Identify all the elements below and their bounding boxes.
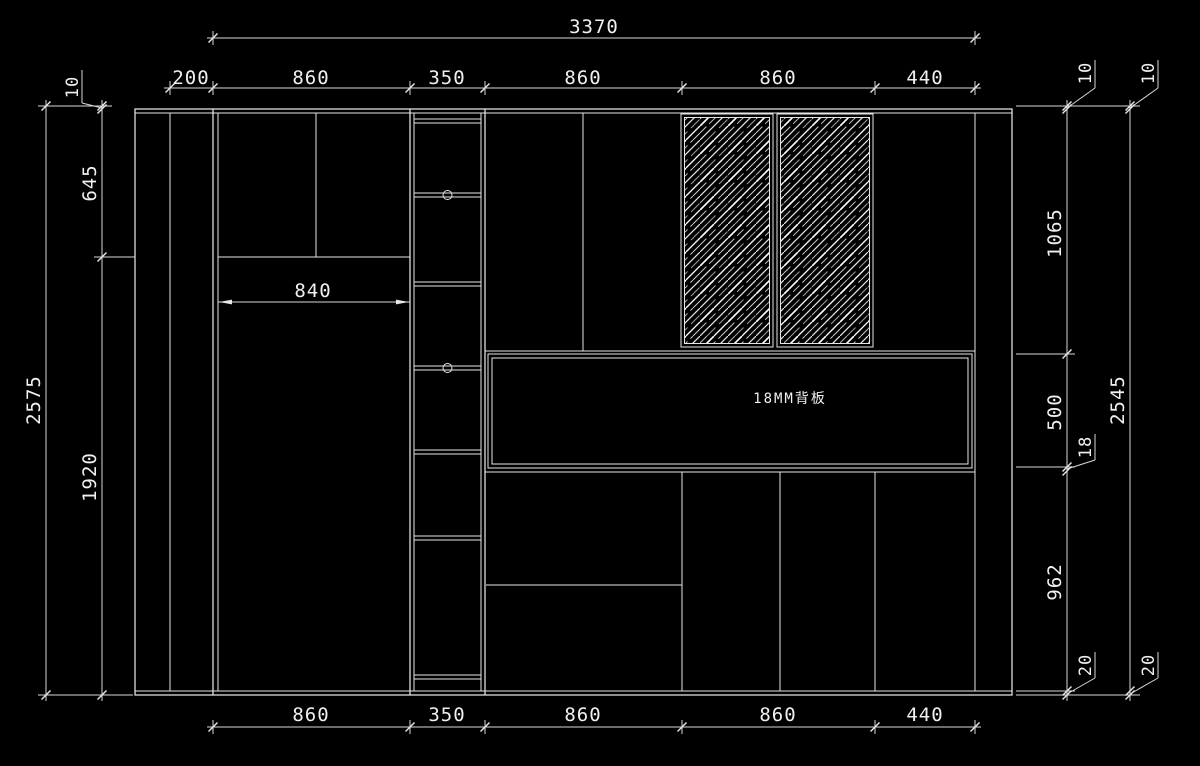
right-bay-lower xyxy=(486,472,875,691)
shelf-knob-circle-top xyxy=(443,191,452,200)
back-panel-outer-rect xyxy=(488,354,972,468)
cabinet-outline xyxy=(135,109,1012,695)
back-panel-band xyxy=(485,354,975,472)
dim-left-1920: 1920 xyxy=(79,452,101,502)
left-bay xyxy=(218,113,410,257)
dimension-lines xyxy=(38,31,1158,734)
dim-right-inner-20: 20 xyxy=(1076,654,1096,676)
dim-bottom-860c: 860 xyxy=(759,704,796,726)
dim-right-inner-1065: 1065 xyxy=(1044,208,1066,258)
dim-left-total: 2575 xyxy=(23,375,45,425)
middle-shelf-column xyxy=(414,119,481,679)
back-panel-label: 18MM背板 xyxy=(753,391,827,407)
dim-interior-840: 840 xyxy=(294,280,331,302)
dim-right-inner-500: 500 xyxy=(1044,393,1066,430)
cad-drawing-canvas: 3370 200 860 350 860 860 440 860 350 860… xyxy=(0,0,1200,766)
cabinet-structure xyxy=(135,109,1012,695)
dim-bottom-350: 350 xyxy=(428,704,465,726)
dim-right-outer-10: 10 xyxy=(1139,62,1159,84)
dim-top-860b: 860 xyxy=(564,67,601,89)
dim-bottom-440: 440 xyxy=(906,704,943,726)
dimension-labels: 3370 200 860 350 860 860 440 860 350 860… xyxy=(23,16,1159,726)
dim-top-860c: 860 xyxy=(759,67,796,89)
hatch-door-panel-right xyxy=(781,118,870,344)
wardrobe-elevation-drawing: 3370 200 860 350 860 860 440 860 350 860… xyxy=(0,0,1200,766)
dim-right-inner-962: 962 xyxy=(1044,563,1066,600)
dim-left-645: 645 xyxy=(79,164,101,201)
dim-left-10: 10 xyxy=(63,76,83,98)
dim-right-outer-20: 20 xyxy=(1139,654,1159,676)
dim-top-440: 440 xyxy=(906,67,943,89)
right-bay-upper xyxy=(485,113,975,351)
back-panel-inner-rect xyxy=(492,358,968,464)
dim-bottom-860b: 860 xyxy=(564,704,601,726)
dim-right-outer-2545: 2545 xyxy=(1107,375,1129,425)
dim-top-200: 200 xyxy=(172,67,209,89)
shelf-knob-circle-bottom xyxy=(443,364,452,373)
dim-right-inner-10: 10 xyxy=(1076,62,1096,84)
dim-right-inner-18: 18 xyxy=(1076,436,1096,458)
dim-top-total: 3370 xyxy=(569,16,619,38)
dim-bottom-860a: 860 xyxy=(292,704,329,726)
dim-top-860a: 860 xyxy=(292,67,329,89)
hatch-door-panel-left xyxy=(685,118,770,344)
dim-top-350: 350 xyxy=(428,67,465,89)
